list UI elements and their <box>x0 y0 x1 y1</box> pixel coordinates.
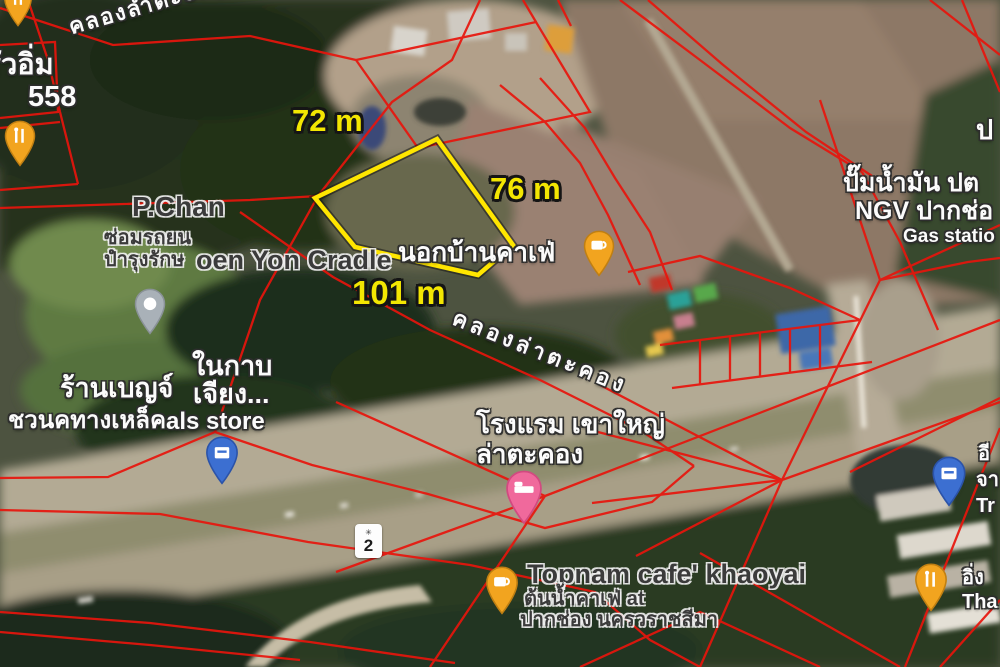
repair-shop-label-line2: ปำรุงรักษ <box>104 250 184 272</box>
edge-label-4: อิ่ง <box>962 568 984 590</box>
nai-kap-label: ในกาบ <box>192 352 272 381</box>
cradle-label: oen Yon Cradle <box>196 246 392 275</box>
store-label-thai: ชวนคทางเหล็ค <box>8 408 166 434</box>
edge-label-1: อี <box>978 444 990 466</box>
edge-label-3: Tr <box>976 496 995 518</box>
restaurant-pin-krua-im[interactable] <box>3 120 37 168</box>
corner-partial-label: ป <box>976 116 993 145</box>
hotel-label-line2: ล่าตะคอง <box>476 440 583 468</box>
gas-station-label-line2: NGV ปากช่อ <box>855 198 993 225</box>
route-number: 2 <box>364 537 373 554</box>
restaurant-label-krua-im: ครัวอิ่ม <box>0 50 54 81</box>
nokban-cafe-label: นอกบ้านคาเฟ่ <box>398 238 555 266</box>
ran-benj-label: ร้านเบญจ์ <box>60 374 173 403</box>
plot-dimension-right: 76 m <box>490 172 561 205</box>
repair-shop-label-line1: ซ่อมรถยน <box>104 228 191 250</box>
store-pin-materials[interactable] <box>204 436 240 486</box>
topnam-cafe-label-line3: ปากช่อง นครวราชสีมา <box>520 610 718 632</box>
topnam-cafe-label-line2: ต้นน้ำคาเฟ่ at <box>524 589 645 611</box>
store-pin-bottom-right[interactable] <box>930 456 968 508</box>
restaurant-pin-bottom-right[interactable] <box>913 563 949 613</box>
cafe-pin-nokban[interactable] <box>582 230 616 278</box>
plot-dimension-top: 72 m <box>292 104 363 137</box>
edge-label-5: Tha <box>962 592 998 614</box>
satellite-map: 72 m 76 m 101 m คลองลำตะong คลองล่าตะคอง… <box>0 0 1000 667</box>
pchan-label: P.Chan <box>132 192 225 222</box>
plot-dimension-bottom: 101 m <box>352 275 446 311</box>
generic-place-pin[interactable] <box>133 288 167 336</box>
topnam-cafe-label-line1: Topnam cafe' khaoyai <box>527 560 806 589</box>
restaurant-pin-topleft-partial[interactable] <box>2 0 34 28</box>
cafe-pin-topnam[interactable] <box>484 566 520 616</box>
highway-2-route-shield: ✳ 2 <box>355 524 382 558</box>
restaurant-label-krua-im-number: 558 <box>28 82 76 113</box>
hotel-label-line1: โรงแรม เขาใหญ่ <box>476 410 665 438</box>
gas-station-label-line1: ปั๊มน้ำมัน ปต <box>843 170 979 197</box>
edge-label-2: จา <box>976 470 999 492</box>
hotel-pin-khaoyai[interactable] <box>504 470 544 526</box>
store-label-english: als store <box>166 409 265 435</box>
gas-station-label-line3: Gas statio <box>903 227 995 248</box>
jiang-label: เจียง... <box>193 380 270 409</box>
